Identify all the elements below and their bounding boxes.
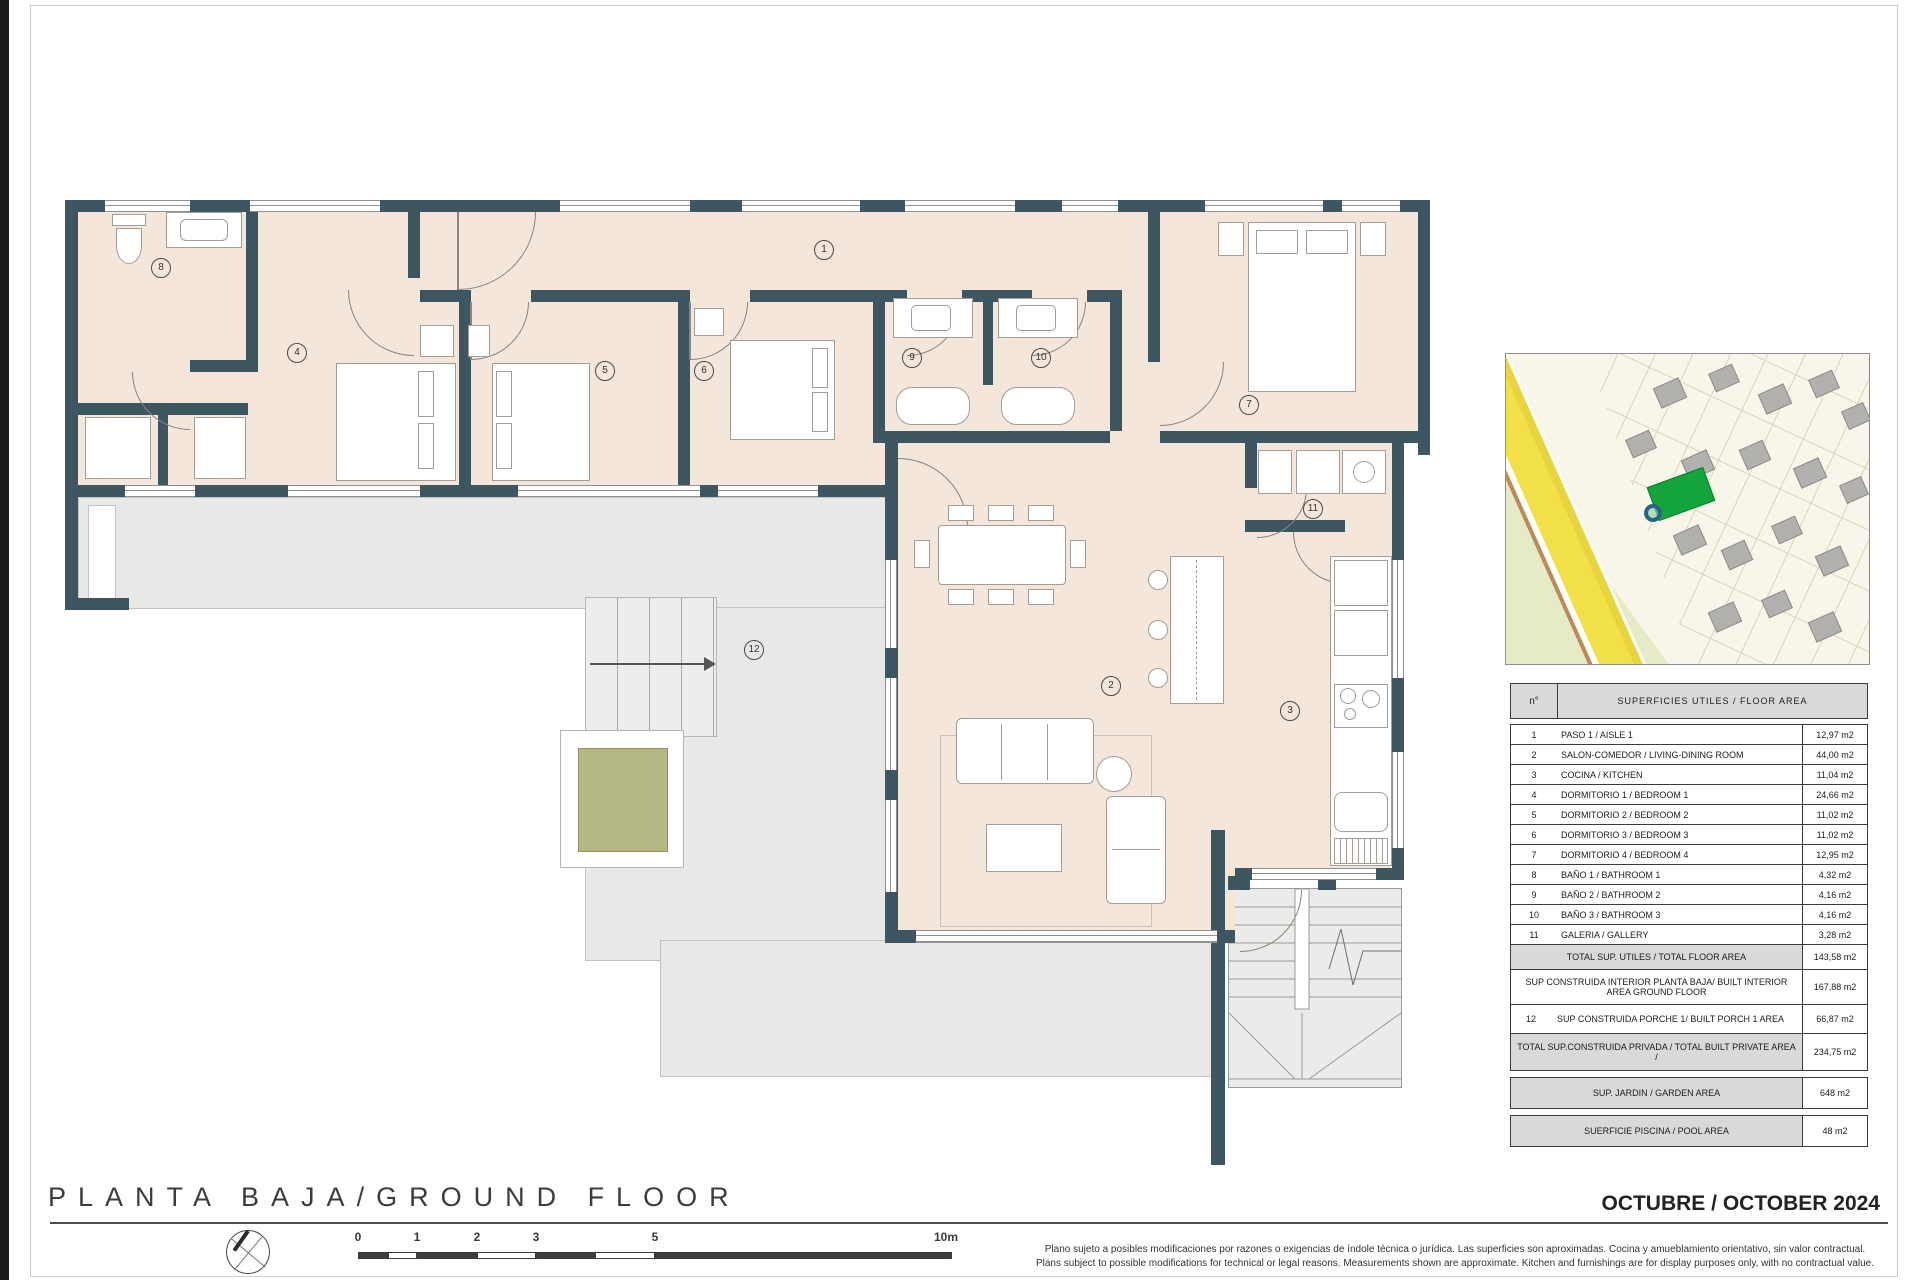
- room-label-8: 8: [151, 258, 171, 278]
- scale-segment: [655, 1252, 952, 1259]
- row-name: DORMITORIO 1 / BEDROOM 1: [1557, 785, 1802, 804]
- wall: [1392, 443, 1404, 543]
- table-row: 8BAÑO 1 / BATHROOM 14,32 m2: [1511, 865, 1867, 885]
- wall: [531, 290, 678, 302]
- row-area: 4,32 m2: [1802, 865, 1867, 884]
- fridge: [1334, 560, 1388, 606]
- oven: [1334, 610, 1388, 656]
- scale-segment: [595, 1252, 655, 1259]
- window: [1342, 200, 1400, 212]
- wall: [65, 200, 78, 610]
- room-label-7: 7: [1239, 395, 1259, 415]
- window: [560, 200, 690, 212]
- steps-arrow-line: [590, 663, 706, 665]
- hob-burner-icon: [1340, 688, 1356, 704]
- island-divider: [1196, 560, 1197, 700]
- dining-table: [938, 525, 1066, 585]
- row-name: DORMITORIO 3 / BEDROOM 3: [1557, 825, 1802, 844]
- wall: [1110, 290, 1122, 431]
- row-area: 12,95 m2: [1802, 845, 1867, 864]
- row-name: BAÑO 1 / BATHROOM 1: [1557, 865, 1802, 884]
- table-row: 3COCINA / KITCHEN11,04 m2: [1511, 765, 1867, 785]
- window: [288, 485, 420, 497]
- footer-rule: [50, 1222, 1888, 1224]
- window: [905, 200, 1015, 212]
- hob-burner-icon: [1362, 690, 1380, 708]
- closet: [85, 417, 151, 479]
- wall: [750, 290, 873, 302]
- wall: [158, 415, 168, 485]
- disclaimer-en: Plans subject to possible modifications …: [1030, 1257, 1880, 1271]
- row-no: 2: [1511, 745, 1557, 764]
- room-label-10: 10: [1031, 348, 1051, 368]
- chair: [914, 540, 930, 568]
- sofa-seam: [1001, 724, 1002, 780]
- window: [125, 485, 195, 497]
- sink-basin: [1016, 305, 1056, 331]
- window: [1392, 752, 1404, 848]
- row-no: 7: [1511, 845, 1557, 864]
- porch-steps: [585, 597, 717, 737]
- sofa: [956, 718, 1094, 784]
- pillow: [812, 348, 828, 388]
- wall: [1160, 431, 1418, 443]
- table-row: 4DORMITORIO 1 / BEDROOM 124,66 m2: [1511, 785, 1867, 805]
- stool: [1148, 570, 1168, 590]
- room-label-12: 12: [744, 640, 764, 660]
- wall: [1228, 876, 1250, 890]
- sheet-date: OCTUBRE / OCTOBER 2024: [1601, 1192, 1880, 1216]
- total-private-row: TOTAL SUP.CONSTRUIDA PRIVADA / TOTAL BUI…: [1511, 1034, 1867, 1071]
- pool-label: SUERFICIE PISCINA / POOL AREA: [1511, 1116, 1802, 1146]
- shelf: [1258, 450, 1292, 494]
- kitchen-sink: [1334, 792, 1388, 832]
- disclaimer: Plano sujeto a posibles modificaciones p…: [1030, 1243, 1880, 1271]
- row-no: 11: [1511, 925, 1557, 944]
- built-interior-row: SUP CONSTRUIDA INTERIOR PLANTA BAJA/ BUI…: [1511, 970, 1867, 1005]
- scale-segment: [358, 1252, 388, 1259]
- room-label-3: 3: [1280, 701, 1300, 721]
- row-area: 24,66 m2: [1802, 785, 1867, 804]
- toilet: [112, 214, 146, 226]
- chair: [988, 505, 1014, 521]
- row-no: 4: [1511, 785, 1557, 804]
- row-area: 11,02 m2: [1802, 805, 1867, 824]
- nightstand: [694, 308, 724, 336]
- map-location-marker-icon: [1644, 504, 1662, 522]
- side-table: [1096, 756, 1132, 792]
- toilet-bowl: [116, 228, 142, 264]
- bathtub: [1001, 387, 1075, 425]
- closet: [194, 417, 246, 479]
- row-area: 44,00 m2: [1802, 745, 1867, 764]
- pillow: [1256, 230, 1298, 254]
- scale-segment: [388, 1252, 417, 1259]
- wall: [873, 290, 885, 431]
- sofa-2: [1106, 796, 1166, 904]
- nightstand: [1360, 222, 1386, 256]
- window: [916, 930, 1217, 943]
- room-label-4: 4: [287, 343, 307, 363]
- window: [1252, 868, 1376, 880]
- garden-area: 648 m2: [1802, 1078, 1867, 1108]
- total-private-area: 234,75 m2: [1802, 1034, 1867, 1070]
- table-header-title: SUPERFICIES UTILES / FLOOR AREA: [1558, 684, 1867, 718]
- door-leaf: [457, 212, 459, 290]
- pool-area: 48 m2: [1802, 1116, 1867, 1146]
- table-row: 10BAÑO 3 / BATHROOM 34,16 m2: [1511, 905, 1867, 925]
- row-no: 10: [1511, 905, 1557, 924]
- row-area: 11,02 m2: [1802, 825, 1867, 844]
- chair: [988, 589, 1014, 605]
- room-label-6: 6: [694, 361, 714, 381]
- table-row: 11GALERIA / GALLERY3,28 m2: [1511, 925, 1867, 945]
- scale-segment: [477, 1252, 536, 1259]
- total-private-label: TOTAL SUP.CONSTRUIDA PRIVADA / TOTAL BUI…: [1511, 1034, 1802, 1070]
- table-header-no: n°: [1511, 684, 1558, 718]
- washer: [1296, 450, 1340, 494]
- nightstand: [468, 325, 490, 357]
- wall: [1148, 212, 1160, 362]
- table-row: 9BAÑO 2 / BATHROOM 24,16 m2: [1511, 885, 1867, 905]
- built-interior-area: 167,88 m2: [1802, 970, 1867, 1004]
- window: [250, 200, 380, 212]
- porch-label: SUP CONSTRUIDA PORCHE 1/ BUILT PORCH 1 A…: [1551, 1005, 1802, 1033]
- room-label-9: 9: [902, 348, 922, 368]
- row-name: GALERIA / GALLERY: [1557, 925, 1802, 944]
- floor-plan: 1 2 3 4 5 6 7 8 9 10 11 12: [0, 0, 1450, 1180]
- garden-row: SUP. JARDIN / GARDEN AREA 648 m2: [1510, 1077, 1868, 1109]
- chair: [1028, 505, 1054, 521]
- row-no: 5: [1511, 805, 1557, 824]
- wall: [1245, 443, 1257, 488]
- chair: [948, 589, 974, 605]
- scale-tick: 2: [474, 1230, 481, 1244]
- row-name: SALON-COMEDOR / LIVING-DINING ROOM: [1557, 745, 1802, 764]
- bed: [336, 363, 456, 481]
- row-no: 9: [1511, 885, 1557, 904]
- wall: [190, 360, 258, 372]
- chair: [1070, 540, 1086, 568]
- window: [518, 485, 700, 497]
- chair: [948, 505, 974, 521]
- window: [1062, 200, 1118, 212]
- room-label-2: 2: [1101, 676, 1121, 696]
- table-row: 6DORMITORIO 3 / BEDROOM 311,02 m2: [1511, 825, 1867, 845]
- table-row: 2SALON-COMEDOR / LIVING-DINING ROOM44,00…: [1511, 745, 1867, 765]
- pillow: [496, 423, 512, 469]
- window: [885, 800, 897, 892]
- scale-tick: 5: [652, 1230, 659, 1244]
- steps-arrow-head: [704, 657, 716, 671]
- table-body: 1PASO 1 / AISLE 112,97 m2 2SALON-COMEDOR…: [1510, 724, 1868, 1071]
- kitchen-island: [1170, 556, 1224, 704]
- pool-row: SUERFICIE PISCINA / POOL AREA 48 m2: [1510, 1115, 1868, 1147]
- table-header: n° SUPERFICIES UTILES / FLOOR AREA: [1510, 683, 1868, 719]
- wall: [1217, 930, 1235, 943]
- wall: [1211, 830, 1225, 1165]
- table-row: 1PASO 1 / AISLE 112,97 m2: [1511, 725, 1867, 745]
- bathtub: [896, 387, 970, 425]
- coffee-table: [986, 824, 1062, 872]
- plan-sheet: 1 2 3 4 5 6 7 8 9 10 11 12: [0, 0, 1920, 1280]
- row-name: DORMITORIO 2 / BEDROOM 2: [1557, 805, 1802, 824]
- wall: [983, 290, 993, 385]
- sofa-seam: [1047, 724, 1048, 780]
- row-area: 4,16 m2: [1802, 905, 1867, 924]
- compass-icon: [226, 1230, 270, 1274]
- sink-basin: [911, 305, 951, 331]
- scale-tick: 0: [355, 1230, 362, 1244]
- wall: [1418, 200, 1430, 455]
- total-floor-area: 143,58 m2: [1802, 945, 1867, 969]
- table-row: 5DORMITORIO 2 / BEDROOM 211,02 m2: [1511, 805, 1867, 825]
- disclaimer-es: Plano sujeto a posibles modificaciones p…: [1030, 1243, 1880, 1257]
- scale-segment: [536, 1252, 595, 1259]
- total-floor-label: TOTAL SUP. UTILES / TOTAL FLOOR AREA: [1511, 945, 1802, 969]
- porch-no: 12: [1511, 1005, 1551, 1033]
- row-no: 1: [1511, 725, 1557, 744]
- page-title: PLANTA BAJA/GROUND FLOOR: [48, 1182, 741, 1213]
- scale-tick: 3: [533, 1230, 540, 1244]
- lower-terrace: [660, 940, 1214, 1077]
- pillow: [1306, 230, 1348, 254]
- wall: [873, 431, 1110, 443]
- window: [742, 200, 860, 212]
- window: [105, 200, 190, 212]
- nightstand: [1218, 222, 1244, 256]
- scale-tick: 1: [414, 1230, 421, 1244]
- site-location-map: [1505, 353, 1870, 665]
- row-no: 8: [1511, 865, 1557, 884]
- pillow: [496, 371, 512, 417]
- porch-strip: [78, 497, 900, 609]
- garden-label: SUP. JARDIN / GARDEN AREA: [1511, 1078, 1802, 1108]
- row-area: 4,16 m2: [1802, 885, 1867, 904]
- row-name: DORMITORIO 4 / BEDROOM 4: [1557, 845, 1802, 864]
- row-no: 6: [1511, 825, 1557, 844]
- wall: [65, 598, 129, 610]
- floor-area-table: n° SUPERFICIES UTILES / FLOOR AREA 1PASO…: [1510, 683, 1868, 1147]
- row-area: 11,04 m2: [1802, 765, 1867, 784]
- wall: [420, 290, 471, 302]
- room-label-11: 11: [1303, 499, 1323, 519]
- window: [885, 560, 897, 648]
- row-name: BAÑO 2 / BATHROOM 2: [1557, 885, 1802, 904]
- pillow: [418, 371, 434, 417]
- stool: [1148, 620, 1168, 640]
- stool: [1148, 668, 1168, 688]
- nightstand: [420, 325, 454, 357]
- room-label-1: 1: [814, 240, 834, 260]
- window: [1392, 560, 1404, 678]
- wall: [898, 930, 916, 943]
- planter: [578, 748, 668, 852]
- row-name: BAÑO 3 / BATHROOM 3: [1557, 905, 1802, 924]
- wall: [1087, 290, 1122, 302]
- wall: [408, 212, 420, 278]
- scale-segment: [417, 1252, 477, 1259]
- row-name: PASO 1 / AISLE 1: [1557, 725, 1802, 744]
- window: [718, 485, 818, 497]
- total-floor-row: TOTAL SUP. UTILES / TOTAL FLOOR AREA 143…: [1511, 945, 1867, 970]
- pillow: [812, 392, 828, 432]
- room-label-5: 5: [595, 361, 615, 381]
- sofa-seam: [1112, 849, 1160, 850]
- sink-basin: [180, 219, 228, 241]
- window: [885, 678, 897, 770]
- row-area: 12,97 m2: [1802, 725, 1867, 744]
- hob-burner-icon: [1344, 708, 1356, 720]
- built-interior-label: SUP CONSTRUIDA INTERIOR PLANTA BAJA/ BUI…: [1511, 970, 1802, 1004]
- scale-tick: 10m: [934, 1230, 958, 1244]
- porch-area: 66,87 m2: [1802, 1005, 1867, 1033]
- porch-recess: [88, 505, 116, 599]
- pillow: [418, 423, 434, 469]
- exterior-patch: [1404, 443, 1420, 533]
- window: [1205, 200, 1323, 212]
- table-row: 7DORMITORIO 4 / BEDROOM 412,95 m2: [1511, 845, 1867, 865]
- row-area: 3,28 m2: [1802, 925, 1867, 944]
- porch-row: 12 SUP CONSTRUIDA PORCHE 1/ BUILT PORCH …: [1511, 1005, 1867, 1034]
- row-name: COCINA / KITCHEN: [1557, 765, 1802, 784]
- chair: [1028, 589, 1054, 605]
- dishwasher: [1334, 838, 1388, 864]
- door-leaf: [689, 302, 691, 360]
- dryer-drum-icon: [1353, 461, 1375, 483]
- row-no: 3: [1511, 765, 1557, 784]
- wall: [246, 212, 258, 360]
